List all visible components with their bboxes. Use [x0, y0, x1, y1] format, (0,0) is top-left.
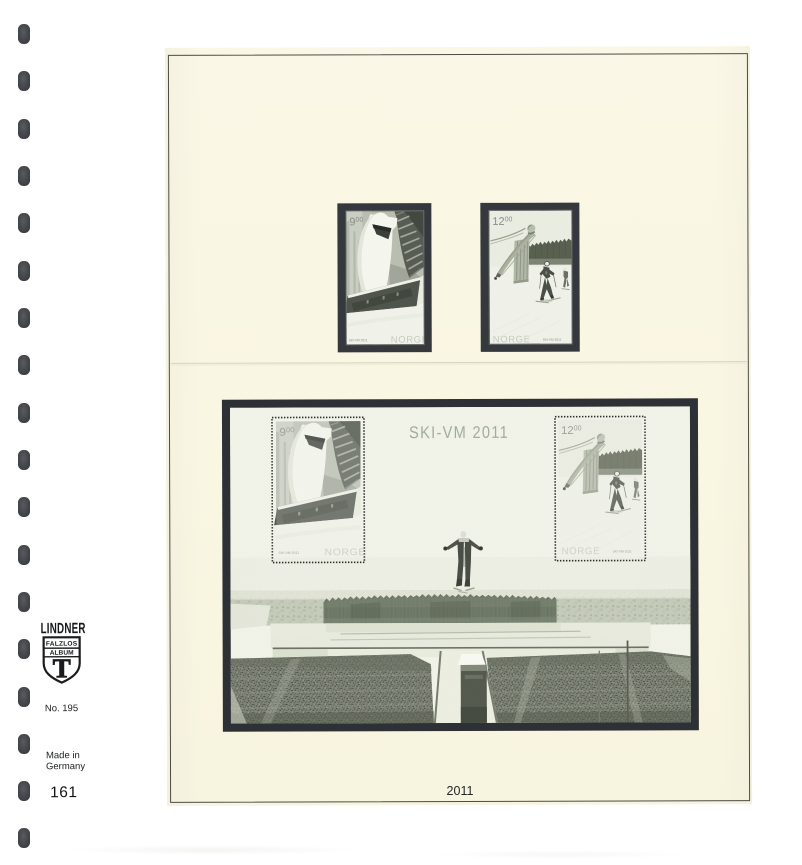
svg-text:T: T — [53, 653, 71, 683]
svg-text:FALZLOS: FALZLOS — [46, 641, 78, 648]
